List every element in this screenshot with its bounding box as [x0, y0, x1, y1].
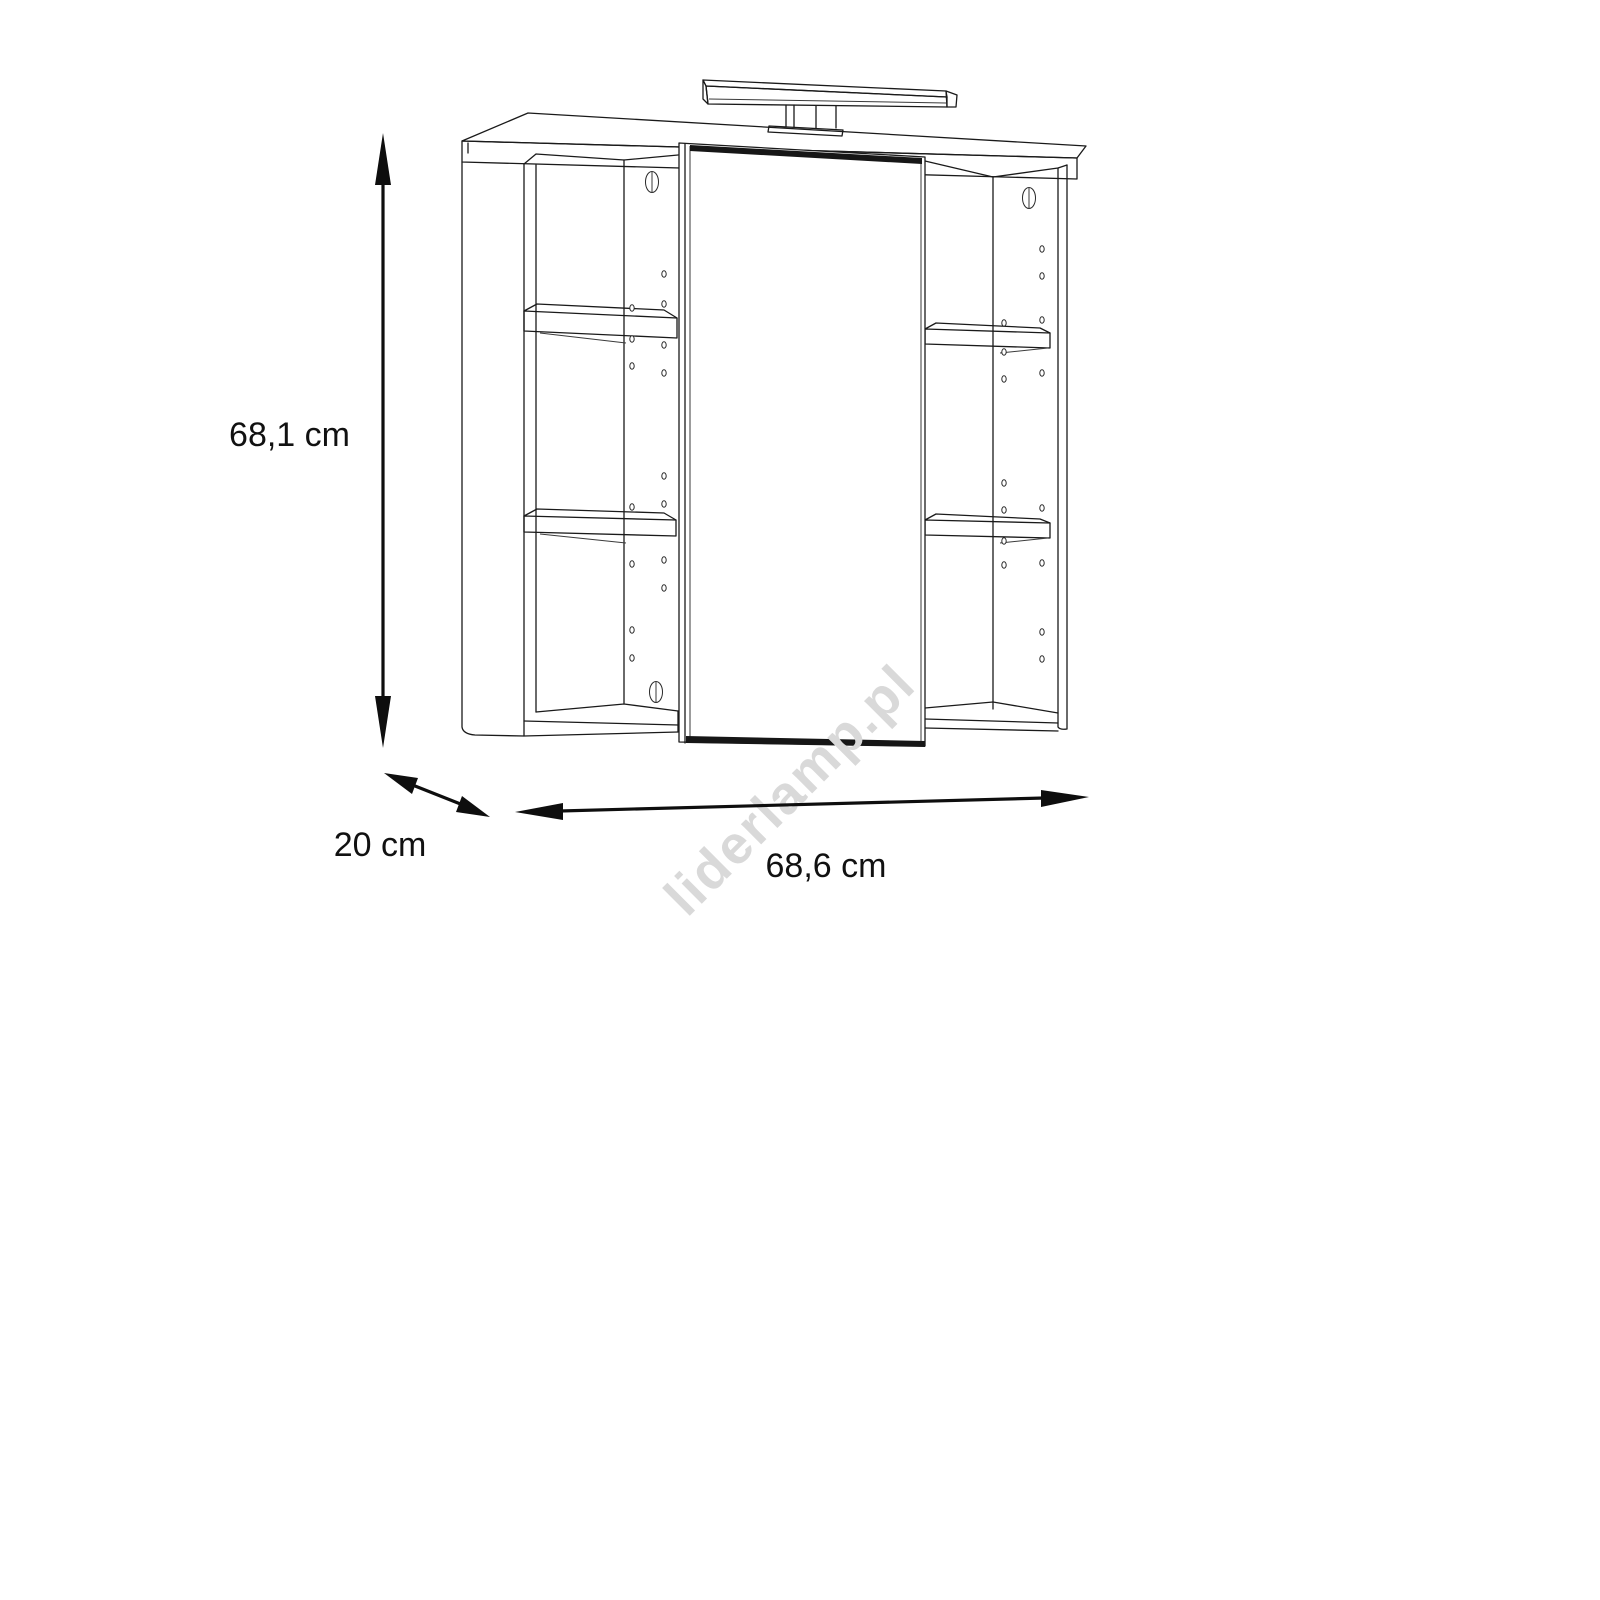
- width-dimension-label: 68,6 cm: [766, 847, 887, 885]
- mounting-hole-left-bottom: [650, 681, 663, 703]
- left-shelf-lower: [524, 509, 676, 543]
- left-shelf-upper: [524, 304, 677, 343]
- mounting-hole-right-top: [1023, 187, 1036, 209]
- depth-dimension-label: 20 cm: [334, 826, 427, 864]
- light-bar-top: [703, 80, 947, 97]
- height-dimension-arrow: [375, 133, 391, 748]
- right-side-panel: [1058, 165, 1067, 729]
- light-fixture: [703, 80, 957, 136]
- arrowhead-down: [375, 696, 391, 748]
- arrowhead-left: [515, 803, 563, 820]
- shelf-pin-holes-left: [630, 271, 666, 661]
- dimension-drawing-page: liderlamp.pl 68,1 cm 20 cm 68,6 cm: [0, 0, 1600, 1600]
- left-shelf-compartment: [524, 154, 678, 736]
- shelf-pin-holes-right: [1002, 246, 1044, 662]
- mirror-door: [679, 143, 925, 747]
- right-shelf-lower: [925, 514, 1050, 543]
- right-shelf-compartment: [925, 161, 1067, 731]
- cabinet-dimension-drawing: liderlamp.pl 68,1 cm 20 cm 68,6 cm: [0, 0, 1600, 1600]
- arrowhead-downright: [456, 796, 490, 817]
- height-dimension-label: 68,1 cm: [229, 416, 350, 454]
- light-lens-line: [709, 99, 946, 103]
- arrowhead-upleft: [384, 773, 418, 794]
- right-shelf-upper: [925, 323, 1050, 353]
- depth-dimension-arrow: [384, 773, 490, 817]
- arrowhead-right: [1041, 790, 1089, 807]
- mounting-hole-left-top: [646, 171, 659, 193]
- arrowhead-up: [375, 133, 391, 185]
- left-side-panel: [462, 162, 536, 736]
